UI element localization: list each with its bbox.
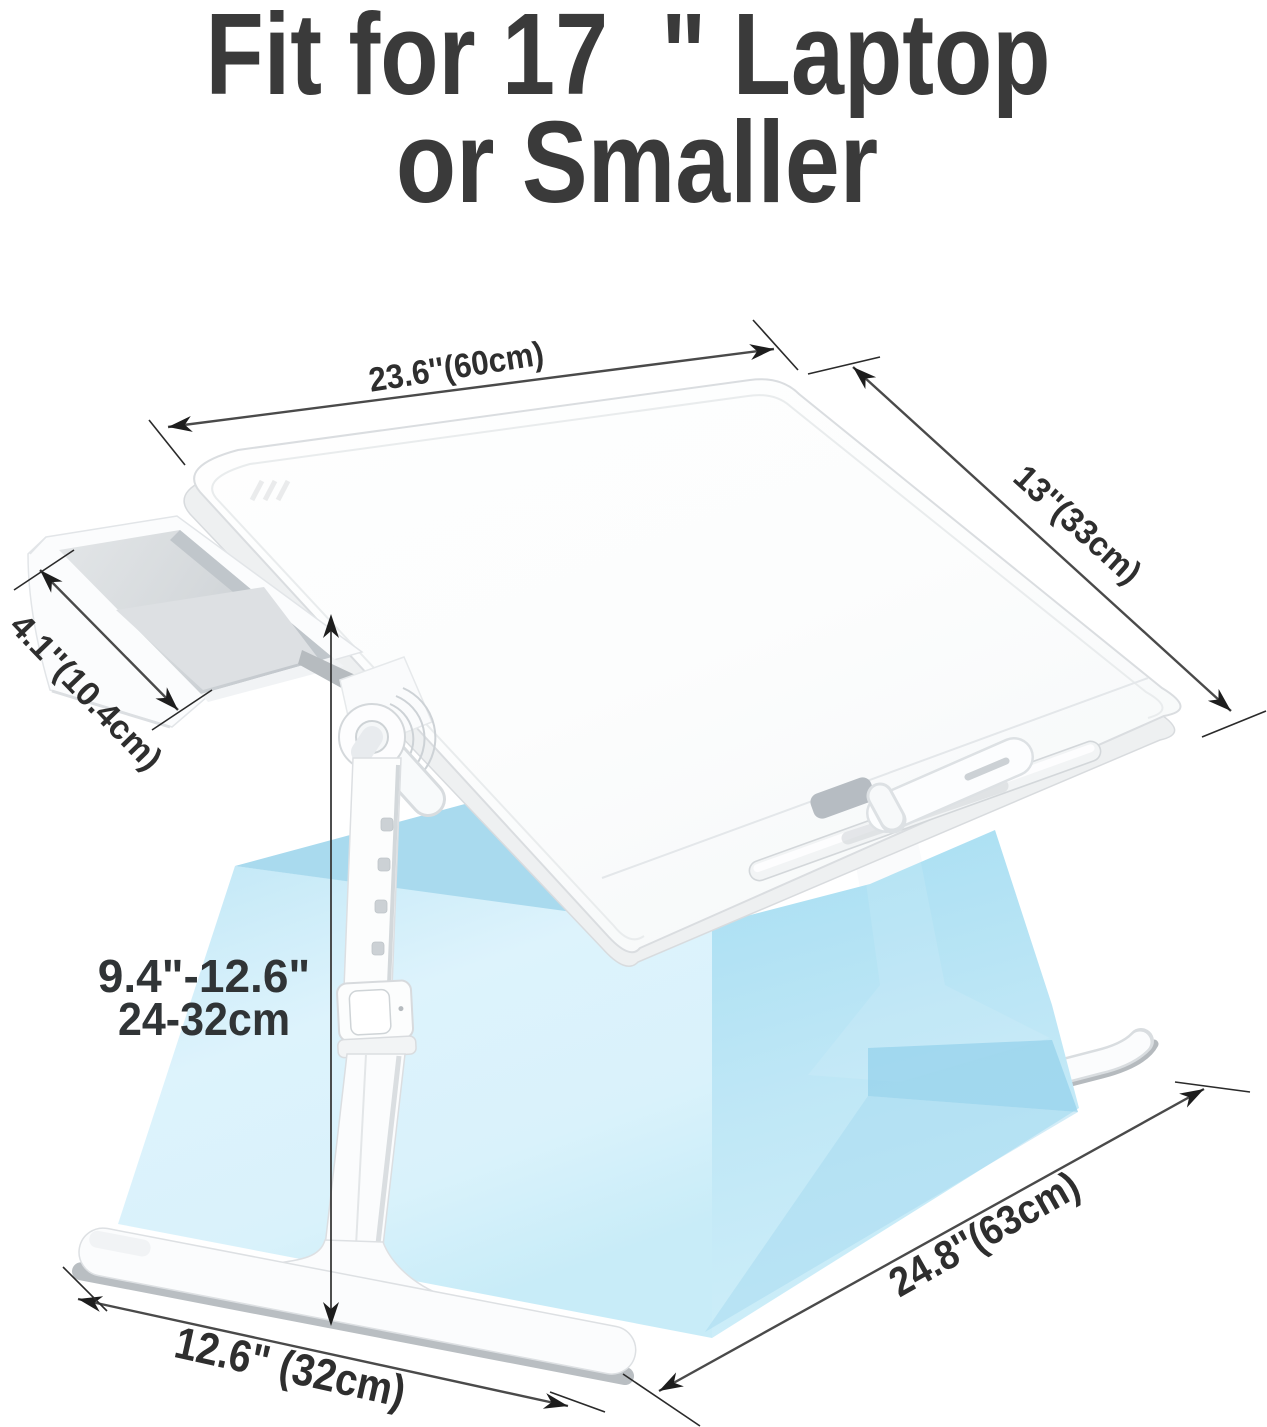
svg-text:or Smaller: or Smaller [396, 97, 878, 226]
svg-text:24-32cm: 24-32cm [118, 995, 290, 1046]
